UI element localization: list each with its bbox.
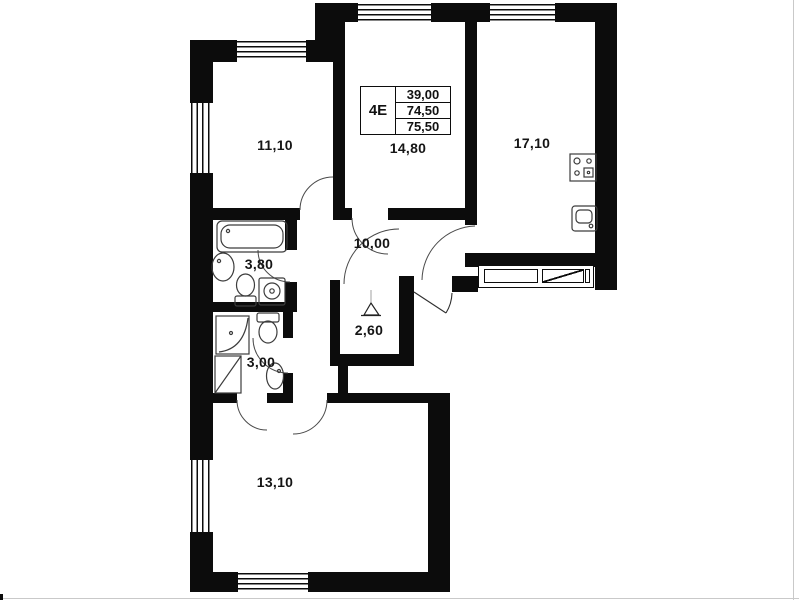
floor-plan: 11,10 14,80 17,10 10,00 3,80 3,00 2,60 1… — [0, 0, 799, 600]
wardrobe-triangle-icon — [361, 290, 381, 316]
room-label-11-10: 11,10 — [257, 137, 293, 153]
room-label-13-10: 13,10 — [257, 474, 294, 490]
legend-area-value: 74,50 — [396, 103, 450, 119]
room-label-10-00: 10,00 — [354, 235, 391, 251]
entry-door — [414, 292, 452, 313]
legend-area-value: 75,50 — [396, 119, 450, 134]
stove-icon — [570, 154, 596, 181]
shower-icon — [216, 316, 249, 354]
room-label-14-80: 14,80 — [390, 140, 427, 156]
vent-shaft-icon — [215, 356, 241, 393]
bathtub-icon — [217, 221, 287, 252]
toilet-icon — [257, 313, 279, 343]
apartment-type-code: 4E — [361, 87, 396, 134]
room-label-2-60: 2,60 — [355, 322, 383, 338]
kitchen-sink-icon — [572, 206, 597, 231]
washing-machine-icon — [259, 278, 285, 305]
sink-icon — [212, 253, 234, 281]
room-label-3-00: 3,00 — [247, 354, 275, 370]
legend-area-value: 39,00 — [396, 87, 450, 103]
apartment-legend: 4E 39,00 74,50 75,50 — [360, 86, 451, 135]
scan-edge-line — [0, 598, 799, 599]
toilet-icon — [235, 274, 256, 306]
scan-edge-line — [793, 0, 794, 600]
scan-speck — [0, 594, 3, 600]
room-label-3-80: 3,80 — [245, 256, 273, 272]
room-label-17-10: 17,10 — [514, 135, 551, 151]
